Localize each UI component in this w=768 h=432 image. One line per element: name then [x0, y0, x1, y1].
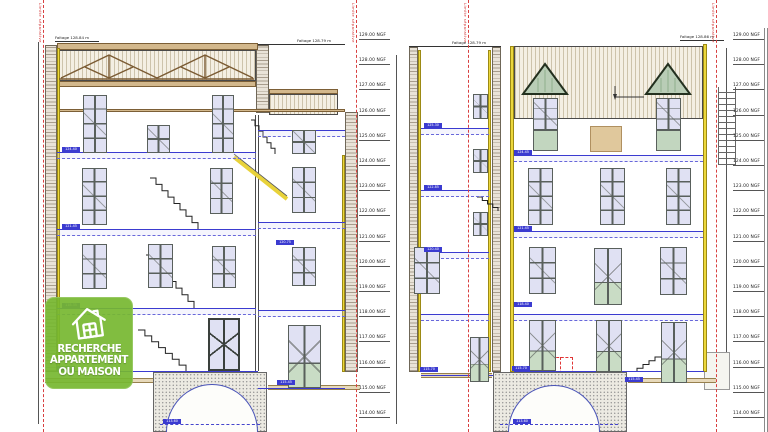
ngf-level-right-0: 129.00 NGF	[733, 33, 764, 40]
floor-slab-1	[57, 229, 256, 236]
exterior-ladder	[718, 87, 736, 165]
ngf-level-middle-9: 120.00 NGF	[359, 260, 390, 267]
left-section-chimney-wall	[256, 45, 269, 113]
left-attic-window-2	[147, 125, 170, 153]
ngf-level-right-9: 120.00 NGF	[733, 260, 764, 267]
right-wing-ground-door	[470, 337, 489, 382]
stair-stringer	[234, 157, 287, 199]
facade-l1-window-1	[529, 247, 556, 294]
dormer-2-shutter	[656, 130, 681, 151]
facade-insulation-right	[703, 44, 707, 372]
right-wing-window-1	[473, 94, 488, 119]
ngf-level-right-12: 117.00 NGF	[733, 335, 764, 342]
facade-l2-window-3	[666, 168, 691, 225]
basement-level-dashed-1	[500, 424, 618, 425]
floor-slab-11	[514, 231, 703, 238]
property-boundary-label-1: Limite séparative	[350, 3, 356, 49]
right-wing-left-wall	[409, 47, 418, 372]
floor-level-tag-11: 124.45	[514, 150, 532, 155]
ngf-level-right-11: 118.00 NGF	[733, 310, 764, 317]
left-section-roof-slab	[57, 43, 258, 50]
dormer-2-window	[656, 98, 681, 130]
right-wing-window-2	[473, 149, 488, 173]
left-wing-window-1	[292, 130, 316, 154]
house-icon	[63, 300, 114, 346]
ngf-level-right-10: 119.00 NGF	[733, 285, 764, 292]
facade-l2-window-1	[528, 168, 553, 225]
left-wing-roof-slab	[269, 89, 338, 94]
property-boundary-line-0	[43, 0, 44, 432]
ngf-level-right-4: 125.00 NGF	[733, 134, 764, 141]
left-l1-window-2	[148, 244, 173, 288]
stair-run-2	[150, 178, 198, 229]
facade-insulation-left	[510, 46, 514, 372]
facade-l2-window-2	[600, 168, 625, 225]
facade-ground-door-1	[529, 320, 556, 371]
left-ground-french-door	[208, 318, 240, 371]
ngf-level-middle-15: 114.00 NGF	[359, 411, 390, 418]
floor-level-tag-13: 118.40	[514, 302, 532, 307]
ngf-level-middle-3: 126.00 NGF	[359, 109, 390, 116]
right-annex-structure	[704, 352, 730, 390]
ngf-level-right-6: 123.00 NGF	[733, 184, 764, 191]
ngf-level-right-5: 124.00 NGF	[733, 159, 764, 166]
floor-slab-10	[514, 155, 703, 162]
left-l1-window-3	[212, 246, 236, 288]
property-boundary-label-0: Limite séparative	[37, 3, 43, 49]
property-boundary-line-3	[716, 0, 717, 432]
ngf-level-middle-10: 119.00 NGF	[359, 285, 390, 292]
floor-level-tag-1: 121.45	[62, 224, 80, 229]
logo-text-line-3: OU MAISON	[58, 366, 120, 377]
left-l2-window-1	[82, 168, 107, 225]
floor-level-tag-16: 115.45	[625, 377, 643, 382]
floor-slab-4	[258, 222, 345, 229]
ngf-level-middle-2: 127.00 NGF	[359, 83, 390, 90]
ngf-level-right-14: 115.00 NGF	[733, 386, 764, 393]
ngf-level-middle-11: 118.00 NGF	[359, 310, 390, 317]
ngf-level-middle-6: 123.00 NGF	[359, 184, 390, 191]
floor-slab-7	[421, 190, 489, 197]
left-wing-window-2	[292, 167, 316, 213]
right-wing-insulation-right	[488, 50, 491, 372]
dormer-1-window	[533, 98, 558, 130]
faitage-label-2: Faitage 128.79 m	[452, 41, 496, 47]
property-boundary-line-2	[468, 0, 469, 432]
dimension-line-left	[38, 42, 39, 424]
floor-level-tag-5: 115.45	[277, 380, 295, 385]
facade-repair-patch	[590, 126, 622, 152]
faitage-label-3: Faitage 128.86 m	[680, 35, 724, 41]
ngf-level-middle-0: 129.00 NGF	[359, 33, 390, 40]
ngf-level-middle-4: 125.00 NGF	[359, 134, 390, 141]
stair-run-5	[637, 357, 661, 372]
facade-ground-door-2	[596, 320, 622, 372]
architectural-elevation-sheet: Limite séparativeLimite séparativeLimite…	[0, 0, 768, 432]
ngf-level-right-8: 121.00 NGF	[733, 235, 764, 242]
facade-l1-window-2	[660, 247, 687, 295]
right-wing-insulation-left	[418, 50, 421, 372]
left-l1-window-1	[82, 244, 107, 289]
left-section-attic-truss-zone	[57, 50, 256, 81]
floor-level-tag-8: 122.85	[424, 185, 442, 190]
floor-slab-9	[421, 314, 489, 321]
floor-level-tag-14: 115.70	[512, 366, 530, 371]
ngf-level-middle-1: 128.00 NGF	[359, 58, 390, 65]
ngf-level-middle-5: 124.00 NGF	[359, 159, 390, 166]
ngf-level-right-1: 128.00 NGF	[733, 58, 764, 65]
right-wing-right-wall	[492, 47, 501, 372]
agency-logo: RECHERCHE APPARTEMENT OU MAISON	[45, 297, 133, 389]
floor-level-tag-10: 115.70	[420, 367, 438, 372]
dormer-1-shutter	[533, 130, 558, 151]
left-section-attic-beam	[57, 81, 256, 87]
floor-level-tag-6: 113.60	[163, 419, 181, 424]
ngf-level-right-15: 114.00 NGF	[733, 411, 764, 418]
left-wing-window-3	[292, 247, 316, 286]
property-boundary-label-3: Limite séparative	[710, 3, 716, 49]
floor-level-tag-0: 124.40	[62, 147, 80, 152]
right-border-line-1	[764, 28, 765, 432]
faitage-label-1: Faitage 128.79 m	[297, 39, 341, 45]
property-boundary-line-1	[356, 0, 357, 432]
ngf-level-middle-13: 116.00 NGF	[359, 361, 390, 368]
ngf-level-middle-8: 121.00 NGF	[359, 235, 390, 242]
floor-slab-5	[258, 310, 345, 317]
stair-stringer	[234, 154, 287, 196]
floor-level-tag-7: 125.30	[424, 123, 442, 128]
ngf-level-middle-14: 115.00 NGF	[359, 386, 390, 393]
right-wing-window-3	[473, 212, 488, 236]
stair-run-0	[138, 330, 186, 371]
floor-level-tag-12: 121.45	[514, 226, 532, 231]
floor-level-tag-4: 120.75	[276, 240, 294, 245]
ground-line-1	[258, 388, 345, 389]
floor-slab-0	[57, 152, 256, 159]
facade-l1-door	[594, 248, 622, 305]
dimension-line-middle	[396, 55, 397, 424]
floor-level-tag-15: 113.60	[513, 419, 531, 424]
basement-level-dashed-0	[160, 424, 260, 425]
left-attic-window-3	[212, 95, 234, 153]
left-attic-window-1	[83, 95, 107, 153]
left-wing-ground-door	[288, 325, 321, 388]
left-l2-window-2	[210, 168, 233, 214]
ngf-level-right-2: 127.00 NGF	[733, 83, 764, 90]
facade-ground-door-3	[661, 322, 687, 383]
ngf-level-middle-12: 117.00 NGF	[359, 335, 390, 342]
faitage-label-0: Faitage 128.84 m	[55, 36, 99, 42]
ngf-level-right-13: 116.00 NGF	[733, 361, 764, 368]
ngf-level-right-7: 122.00 NGF	[733, 209, 764, 216]
right-wing-window-4	[414, 247, 440, 294]
floor-level-tag-9: 120.40	[424, 247, 442, 252]
ngf-level-right-3: 126.00 NGF	[733, 109, 764, 116]
property-boundary-label-2: Limite séparative	[462, 3, 468, 49]
floor-slab-6	[421, 128, 489, 135]
ngf-level-middle-7: 122.00 NGF	[359, 209, 390, 216]
